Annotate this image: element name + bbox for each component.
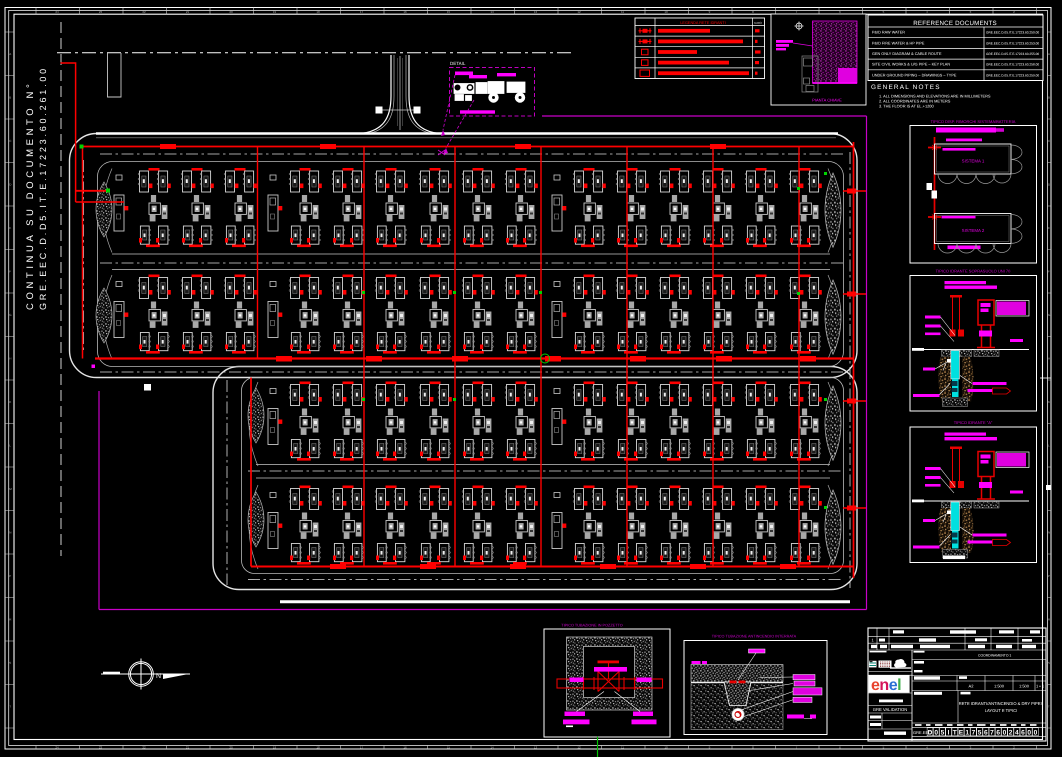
svg-text:16: 16 bbox=[403, 10, 407, 14]
svg-text:K: K bbox=[1048, 400, 1050, 404]
svg-text:20: 20 bbox=[229, 746, 233, 750]
svg-text:10: 10 bbox=[664, 746, 668, 750]
svg-text:SISTEMA 1: SISTEMA 1 bbox=[962, 159, 985, 164]
svg-text:22: 22 bbox=[142, 10, 146, 14]
svg-text:12: 12 bbox=[577, 746, 581, 750]
svg-text:15: 15 bbox=[447, 10, 451, 14]
svg-text:GRE.EEC.D.05.IT.E.17223.60.253: GRE.EEC.D.05.IT.E.17223.60.253.00 bbox=[986, 41, 1039, 45]
svg-text:13: 13 bbox=[534, 10, 538, 14]
svg-text:N: N bbox=[1048, 531, 1050, 535]
svg-text:7: 7 bbox=[972, 729, 976, 736]
svg-text:SITE CIVIL WORKS & U/G PIPE –: SITE CIVIL WORKS & U/G PIPE – KEY PLAN bbox=[872, 63, 950, 67]
svg-text:24: 24 bbox=[55, 746, 59, 750]
svg-text:23: 23 bbox=[99, 746, 103, 750]
svg-text:GEN ONLY DIAGRAM & CABLE ROUTE: GEN ONLY DIAGRAM & CABLE ROUTE bbox=[872, 52, 942, 56]
svg-text:18: 18 bbox=[316, 746, 320, 750]
svg-text:GRE.EEC.D.05.IT.E.17223.60.250: GRE.EEC.D.05.IT.E.17223.60.250.00 bbox=[986, 31, 1039, 35]
svg-text:14: 14 bbox=[490, 746, 494, 750]
svg-text:GRE VALIDATION: GRE VALIDATION bbox=[873, 707, 908, 712]
svg-text:15: 15 bbox=[447, 746, 451, 750]
svg-text:I: I bbox=[948, 729, 950, 736]
svg-text:TIPICO TUBAZIONE IN POZZETTO: TIPICO TUBAZIONE IN POZZETTO bbox=[561, 624, 623, 628]
svg-text:UNDER GROUND PIPING – DRAWINGS: UNDER GROUND PIPING – DRAWINGS – TYPE bbox=[872, 73, 957, 77]
svg-text:1:500: 1:500 bbox=[1019, 684, 1030, 689]
svg-text:3. THE FLOOR IS AT EL.+1200: 3. THE FLOOR IS AT EL.+1200 bbox=[879, 104, 934, 109]
svg-text:S: S bbox=[9, 661, 11, 665]
svg-text:H: H bbox=[1048, 357, 1050, 361]
svg-text:P&ID RAW WATER: P&ID RAW WATER bbox=[872, 31, 905, 35]
svg-text:COORDINAMENTO 1: COORDINAMENTO 1 bbox=[978, 654, 1011, 658]
svg-text:T: T bbox=[1048, 705, 1050, 709]
svg-text:A2: A2 bbox=[969, 684, 975, 689]
svg-text:P: P bbox=[9, 574, 11, 578]
svg-text:14: 14 bbox=[490, 10, 494, 14]
svg-text:GRE.EEC.D.D5.IT.E.17223.60.261: GRE.EEC.D.D5.IT.E.17223.60.261.00 bbox=[38, 66, 48, 310]
svg-text:0: 0 bbox=[1003, 729, 1007, 736]
svg-text:K: K bbox=[9, 400, 11, 404]
svg-text:E: E bbox=[9, 226, 11, 230]
svg-text:B: B bbox=[1048, 96, 1050, 100]
svg-text:2: 2 bbox=[1009, 729, 1013, 736]
svg-text:10: 10 bbox=[664, 10, 668, 14]
svg-text:21: 21 bbox=[186, 746, 190, 750]
svg-text:TIPICO TUBAZIONE ANTINCENDIO I: TIPICO TUBAZIONE ANTINCENDIO INTERRATA bbox=[712, 635, 797, 639]
svg-text:16: 16 bbox=[403, 746, 407, 750]
svg-text:P&ID FIRE WATER & HP PIPE: P&ID FIRE WATER & HP PIPE bbox=[872, 41, 925, 45]
svg-text:5: 5 bbox=[941, 729, 945, 736]
svg-text:P: P bbox=[1048, 574, 1050, 578]
svg-text:23: 23 bbox=[99, 10, 103, 14]
svg-text:4: 4 bbox=[1015, 729, 1019, 736]
svg-text:enel: enel bbox=[871, 677, 901, 694]
svg-text:11: 11 bbox=[621, 10, 624, 14]
svg-text:5: 5 bbox=[978, 729, 982, 736]
svg-text:PIANTA CHIAVE: PIANTA CHIAVE bbox=[812, 98, 842, 103]
svg-text:B: B bbox=[9, 96, 11, 100]
svg-text:7: 7 bbox=[990, 729, 994, 736]
svg-text:0: 0 bbox=[1034, 729, 1038, 736]
svg-text:A: A bbox=[1048, 52, 1050, 56]
svg-text:0: 0 bbox=[934, 729, 938, 736]
svg-text:11: 11 bbox=[621, 746, 624, 750]
svg-text:N: N bbox=[9, 531, 11, 535]
svg-text:T: T bbox=[9, 705, 11, 709]
svg-text:19: 19 bbox=[273, 10, 277, 14]
svg-text:18: 18 bbox=[316, 10, 320, 14]
svg-text:N.RO: N.RO bbox=[754, 21, 762, 25]
svg-text:H: H bbox=[9, 357, 11, 361]
svg-text:RETE IDRANTI/ANTINCENDIO & DRY: RETE IDRANTI/ANTINCENDIO & DRY PIPES bbox=[959, 701, 1044, 706]
svg-text:12: 12 bbox=[577, 10, 581, 14]
svg-text:N: N bbox=[156, 673, 161, 680]
svg-text:LAYOUT E TIPICI: LAYOUT E TIPICI bbox=[985, 708, 1018, 713]
svg-text:1: 1 bbox=[965, 729, 969, 736]
svg-text:GRE.EEC.D.05.IT.E.17223.60.259: GRE.EEC.D.05.IT.E.17223.60.259.00 bbox=[986, 73, 1039, 77]
svg-text:17: 17 bbox=[360, 10, 364, 14]
svg-text:6: 6 bbox=[1021, 729, 1025, 736]
svg-text:DETAIL: DETAIL bbox=[450, 61, 466, 66]
svg-text:E: E bbox=[959, 729, 964, 736]
svg-text:F: F bbox=[9, 270, 11, 274]
svg-text:D: D bbox=[928, 729, 933, 736]
svg-text:0: 0 bbox=[1027, 729, 1031, 736]
svg-text:6: 6 bbox=[984, 729, 988, 736]
svg-text:GRE.EEC.D.05.IT.E.17223.60.258: GRE.EEC.D.05.IT.E.17223.60.258.00 bbox=[986, 63, 1039, 67]
svg-text:20: 20 bbox=[229, 10, 233, 14]
svg-text:SISTEMA 2: SISTEMA 2 bbox=[962, 228, 985, 233]
svg-text:A: A bbox=[9, 52, 11, 56]
svg-text:1:500: 1:500 bbox=[994, 684, 1005, 689]
svg-text:E: E bbox=[1048, 226, 1050, 230]
svg-text:13: 13 bbox=[534, 746, 538, 750]
svg-text:1 ▪ 1: 1 ▪ 1 bbox=[1036, 684, 1045, 689]
svg-text:22: 22 bbox=[142, 746, 146, 750]
svg-text:GRE.EEC.D.05.IT.E.17223.60.255: GRE.EEC.D.05.IT.E.17223.60.255.00 bbox=[986, 52, 1039, 56]
svg-text:TIPICO IDRANTE "A": TIPICO IDRANTE "A" bbox=[954, 420, 993, 425]
svg-text:24: 24 bbox=[55, 10, 59, 14]
svg-text:6: 6 bbox=[996, 729, 1000, 736]
svg-text:T: T bbox=[953, 729, 957, 736]
svg-text:CONTINUA SU DOCUMENTO N°: CONTINUA SU DOCUMENTO N° bbox=[25, 81, 36, 310]
svg-text:F: F bbox=[1048, 270, 1050, 274]
svg-text:19: 19 bbox=[273, 746, 277, 750]
svg-text:REFERENCE DOCUMENTS: REFERENCE DOCUMENTS bbox=[913, 20, 997, 27]
svg-text:S: S bbox=[1048, 661, 1050, 665]
svg-text:TIPICO IDRANTE SOPRASUOLO UNI: TIPICO IDRANTE SOPRASUOLO UNI 70 bbox=[936, 269, 1011, 274]
svg-text:17: 17 bbox=[360, 746, 364, 750]
svg-text:LEGENDA RETE IDRANTI: LEGENDA RETE IDRANTI bbox=[680, 21, 725, 25]
svg-text:GENERAL NOTES: GENERAL NOTES bbox=[871, 84, 941, 91]
svg-text:TIPICO DISP. RIMORCHI SISTEMA/: TIPICO DISP. RIMORCHI SISTEMA/BATTERIA bbox=[931, 119, 1016, 124]
svg-text:21: 21 bbox=[186, 10, 190, 14]
